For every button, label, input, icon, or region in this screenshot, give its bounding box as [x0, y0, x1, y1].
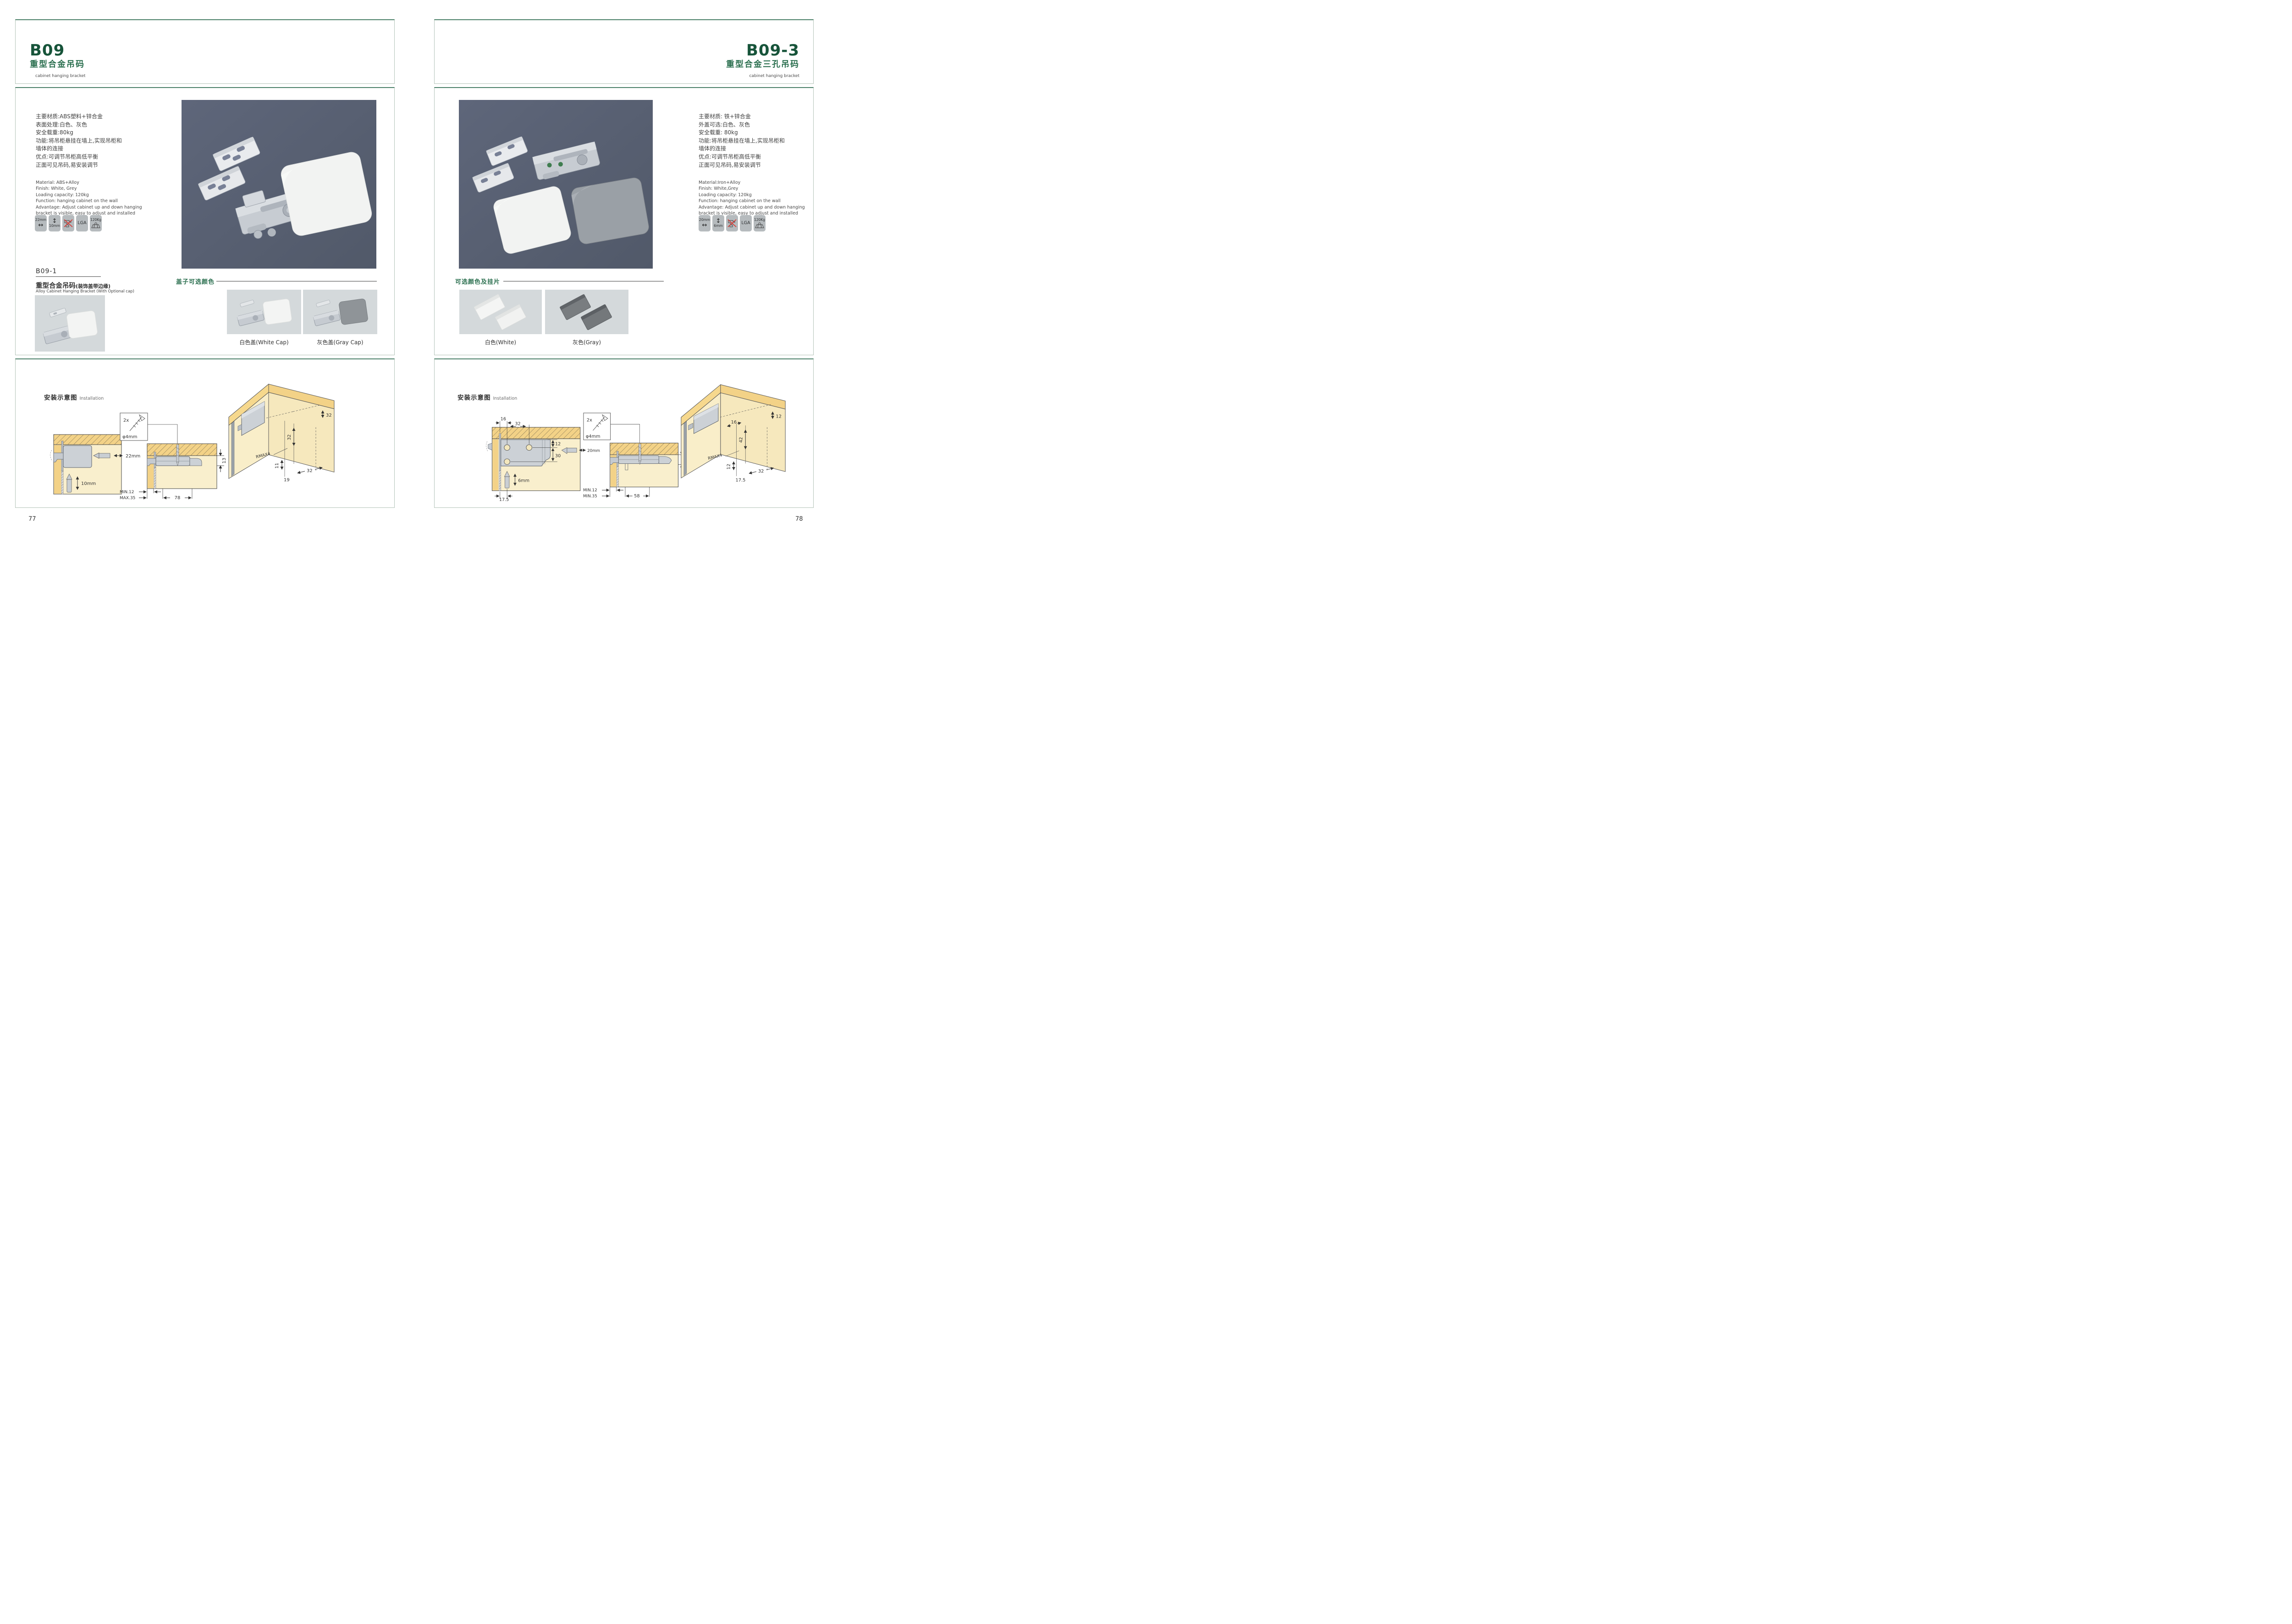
height-dimension-icon: ↕ 10mm [49, 215, 61, 231]
width-dimension-icon: 22mm ↔ [35, 215, 47, 231]
screw-size: φ4mm [122, 435, 137, 440]
load-capacity-icon: 120Kg [90, 215, 102, 231]
page-number: 78 [795, 516, 803, 523]
dim-label: 30 [555, 454, 561, 459]
dim-label: MAX.35 [120, 496, 135, 500]
dim-label: MIN.12 [120, 490, 134, 495]
dim-label: 12 [727, 464, 732, 470]
gray-cap-option-photo [303, 290, 377, 334]
right-installation-box: 安装示意图 Installation [434, 358, 814, 508]
installation-heading: 安装示意图 Installation [44, 392, 104, 402]
load-capacity-icon: 120Kg [754, 215, 766, 231]
lga-label: LGA [741, 221, 750, 226]
left-header-box: B09 重型合金吊码 cabinet hanging bracket [15, 19, 395, 84]
dim-label: 32 [287, 435, 292, 440]
white-plate-option-photo [459, 290, 542, 334]
height-dimension-icon: ↕ 6mm [712, 215, 724, 231]
product-code: B09 [30, 43, 65, 58]
dim-label: MIN.35 [583, 494, 597, 499]
gray-cap [570, 177, 650, 245]
dim-label: 11 [275, 463, 280, 469]
product-code: B09-3 [746, 43, 799, 58]
main-product-photo [459, 100, 653, 269]
dim-label: 16 [731, 420, 737, 425]
specs-en: Material:Iron+AlloyFinish: White,Grey Lo… [699, 180, 805, 216]
page-number: 77 [28, 516, 36, 523]
height-label: 6mm [714, 224, 722, 228]
dim-label: 12 [776, 414, 782, 419]
installation-diagram-section: 2x φ4mm 13 [119, 411, 226, 500]
dim-label: 78 [175, 495, 181, 500]
dim-label: 58 [634, 494, 639, 499]
sub-product-title-cn: 重型合金吊码(装饰盖带边缘) [36, 281, 110, 290]
installation-heading: 安装示意图 Installation [457, 392, 517, 402]
divider [36, 276, 101, 277]
product-title-cn: 重型合金三孔吊码 [726, 61, 799, 69]
dim-label: 17.5 [735, 478, 745, 483]
lga-label: LGA [77, 221, 86, 226]
sub-product-title-en: Alloy Cabinet Hanging Bracket (With Opti… [36, 289, 134, 294]
specs-cn: 主要材质:ABS塑料+锌合金表面处理:白色、灰色 安全载重:80kg功能:将吊柜… [36, 113, 122, 169]
cap-color-heading: 盖子可选颜色 [176, 277, 215, 286]
product-title-cn: 重型合金吊码 [30, 61, 85, 69]
catalog-spread: B09 重型合金吊码 cabinet hanging bracket 主要材质:… [0, 0, 830, 541]
product-subtitle-en: cabinet hanging bracket [35, 74, 86, 78]
gray-cap-caption: 灰色盖(Gray Cap) [303, 338, 377, 346]
screw-qty: 2x [587, 418, 592, 423]
load-label: 120Kg [754, 218, 765, 222]
white-cap [66, 310, 98, 339]
dim-label: 17.5 [499, 497, 509, 501]
specs-cn: 主要材质: 铁+锌合金外盖可选:白色、灰色 安全载重: 80kg功能:将吊柜悬挂… [699, 113, 785, 169]
installation-diagram-perspective: 32 32 RMAX4 11 19 32 [224, 372, 341, 487]
white-cap-caption: 白色盖(White Cap) [227, 338, 301, 346]
dim-label: 19 [284, 478, 290, 483]
weight-icon [91, 222, 101, 228]
page-left: B09 重型合金吊码 cabinet hanging bracket 主要材质:… [15, 0, 396, 541]
feature-icons: 22mm ↔ ↕ 10mm LGA [35, 215, 102, 231]
left-installation-box: 安装示意图 Installation [15, 358, 395, 508]
page-right: B09-3 重型合金三孔吊码 cabinet hanging bracket 主… [434, 0, 815, 541]
heading-rule [216, 281, 377, 281]
product-subtitle-en: cabinet hanging bracket [749, 74, 799, 78]
dim-label: 16 [501, 417, 506, 422]
no-drill-icon [726, 215, 738, 231]
right-content-box: 主要材质: 铁+锌合金外盖可选:白色、灰色 安全载重: 80kg功能:将吊柜悬挂… [434, 87, 814, 355]
white-plate-caption: 白色(White) [459, 338, 542, 346]
dim-label: 10mm [81, 481, 96, 486]
dim-label: 6mm [518, 478, 529, 483]
specs-en: Material: ABS+AlloyFinish: White, Grey L… [36, 180, 142, 216]
horizontal-arrow-icon: ↔ [39, 222, 44, 228]
load-label: 120Kg [90, 218, 101, 222]
height-label: 10mm [49, 224, 60, 228]
main-product-photo [182, 100, 376, 269]
sub-product-photo [35, 295, 105, 352]
dim-label: 42 [738, 437, 744, 443]
horizontal-arrow-icon: ↔ [702, 222, 707, 228]
dim-label: 32 [515, 421, 520, 426]
lga-certificate-icon: LGA [740, 215, 752, 231]
screw-size: φ4mm [586, 434, 601, 439]
dim-label: MIN.12 [583, 488, 597, 493]
dim-label: 32 [326, 413, 332, 418]
right-header-box: B09-3 重型合金三孔吊码 cabinet hanging bracket [434, 19, 814, 84]
dim-label: 32 [307, 468, 313, 473]
no-drill-icon [62, 215, 74, 231]
dim-label: 32 [758, 469, 764, 474]
installation-diagram-perspective: 16 12 42 RMAX4 12 17.5 32 [677, 372, 792, 487]
left-content-box: 主要材质:ABS塑料+锌合金表面处理:白色、灰色 安全载重:80kg功能:将吊柜… [15, 87, 395, 355]
width-dimension-icon: 20mm ↔ [699, 215, 711, 231]
white-cap-option-photo [227, 290, 301, 334]
installation-diagram-section: 2x φ4mm [582, 410, 688, 499]
weight-icon [755, 222, 765, 228]
heading-rule [503, 281, 664, 281]
color-option-heading: 可选颜色及挂片 [455, 277, 500, 286]
dim-label: 12 [555, 442, 561, 447]
screw-qty: 2x [123, 418, 129, 423]
gray-plate-caption: 灰色(Gray) [545, 338, 628, 346]
gray-plate-option-photo [545, 290, 628, 334]
feature-icons: 20mm ↔ ↕ 6mm LGA [699, 215, 766, 231]
lga-certificate-icon: LGA [76, 215, 88, 231]
sub-product-code: B09-1 [36, 268, 57, 275]
